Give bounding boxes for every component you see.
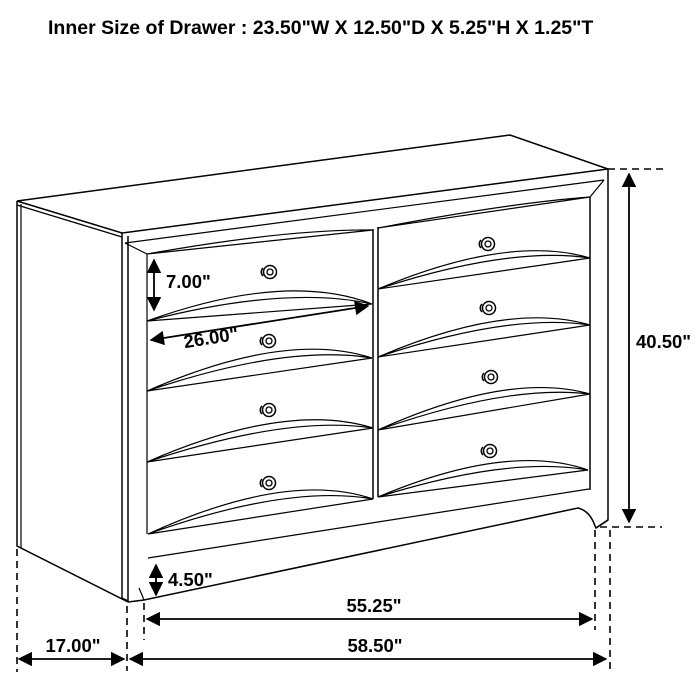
drawer-separator [148, 490, 373, 534]
drawer-separator [147, 420, 373, 462]
drawer-knob-icon [260, 404, 275, 417]
top-molding-line [125, 180, 604, 243]
drawer-separator [378, 461, 588, 497]
drawer-knob-icon [480, 302, 495, 315]
drawer-separator [378, 197, 590, 228]
dimension-label-drawer-width: 26.00" [182, 323, 240, 352]
dimension-label-base-height: 4.50" [168, 569, 213, 590]
left-foot-curve [139, 588, 144, 600]
drawer-knob-icon [481, 445, 496, 458]
drawer-knob-icon [260, 335, 275, 348]
diagram-canvas: Inner Size of Drawer : 23.50"W X 12.50"D… [0, 0, 700, 700]
drawer-separator [378, 318, 590, 357]
dimension-label-side-depth: 17.00" [45, 635, 100, 656]
left-side-panel [17, 201, 128, 602]
drawer-knob-icon [261, 266, 276, 279]
drawer-knob-icon [479, 238, 494, 251]
dimension-label-overall-width: 58.50" [347, 635, 402, 656]
dimension-label-drawer-height: 7.00" [166, 271, 211, 292]
drawer-separator [147, 291, 372, 321]
left-panel-top-edge-line [17, 205, 122, 237]
drawer-separator [147, 349, 372, 391]
dimension-label-overall-height: 40.50" [636, 331, 691, 352]
dimension-labels: 7.00" 26.00" 40.50" 4.50" 55.25" 58.50" … [45, 271, 691, 656]
drawer-knobs [260, 238, 497, 490]
right-outer-edge [596, 169, 608, 528]
dimension-label-footprint-width: 55.25" [346, 595, 401, 616]
dresser-dimension-diagram: Inner Size of Drawer : 23.50"W X 12.50"D… [0, 0, 700, 700]
drawer-knob-icon [482, 371, 497, 384]
drawer-fronts [147, 197, 590, 534]
diagram-title: Inner Size of Drawer : 23.50"W X 12.50"D… [48, 17, 593, 39]
drawer-separator [378, 251, 590, 289]
drawer-separator [378, 388, 590, 430]
front-left-stile [122, 233, 128, 601]
right-chamfer-line [590, 180, 604, 197]
drawer-separator [147, 230, 373, 254]
drawer-knob-icon [260, 477, 275, 490]
dimension-arrows [19, 174, 629, 659]
